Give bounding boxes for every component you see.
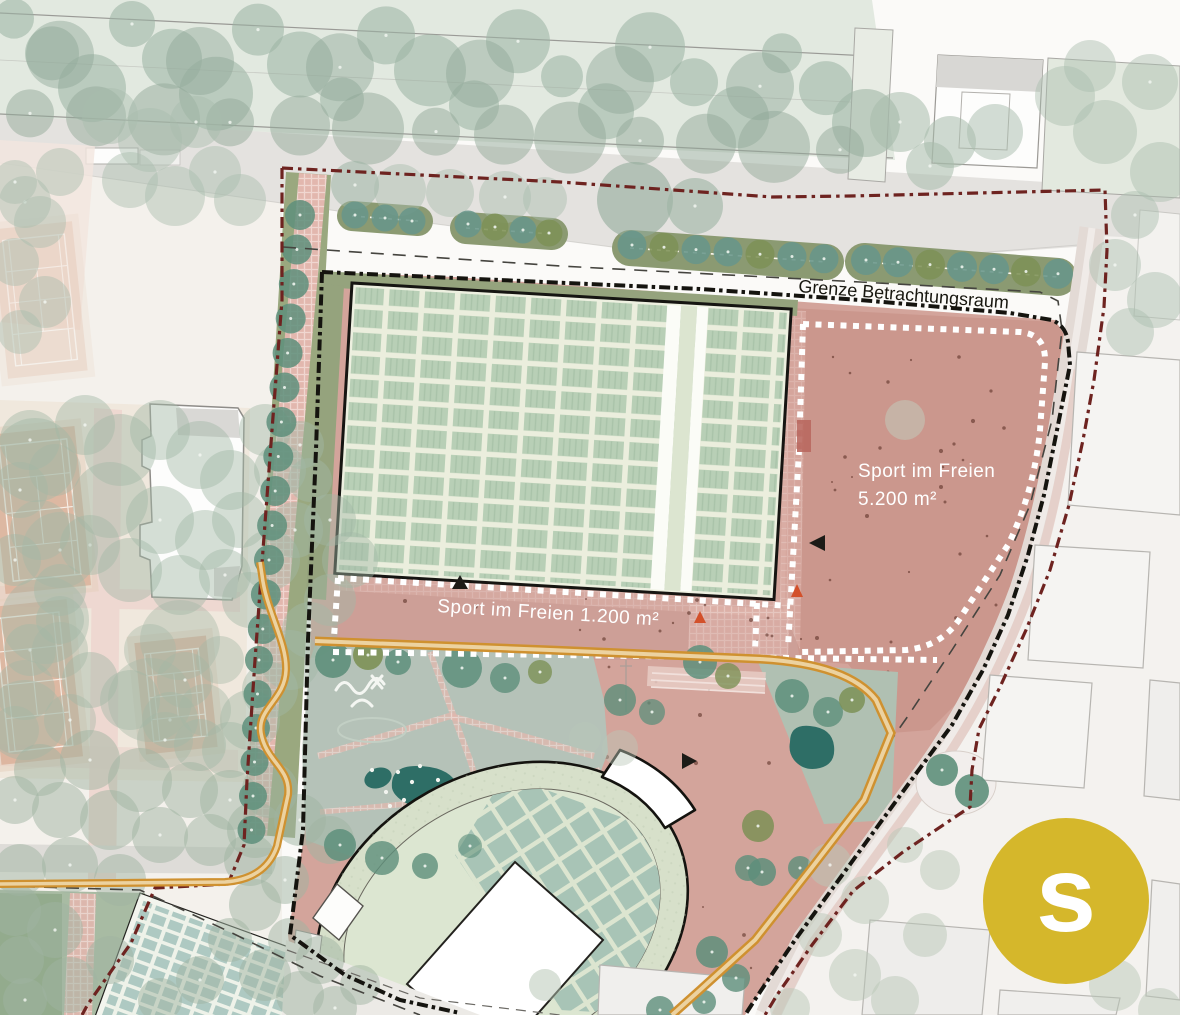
svg-text:5.200 m²: 5.200 m² xyxy=(858,489,937,510)
svg-text:Sport im Freien: Sport im Freien xyxy=(858,461,995,482)
svg-text:s: s xyxy=(1036,833,1096,954)
